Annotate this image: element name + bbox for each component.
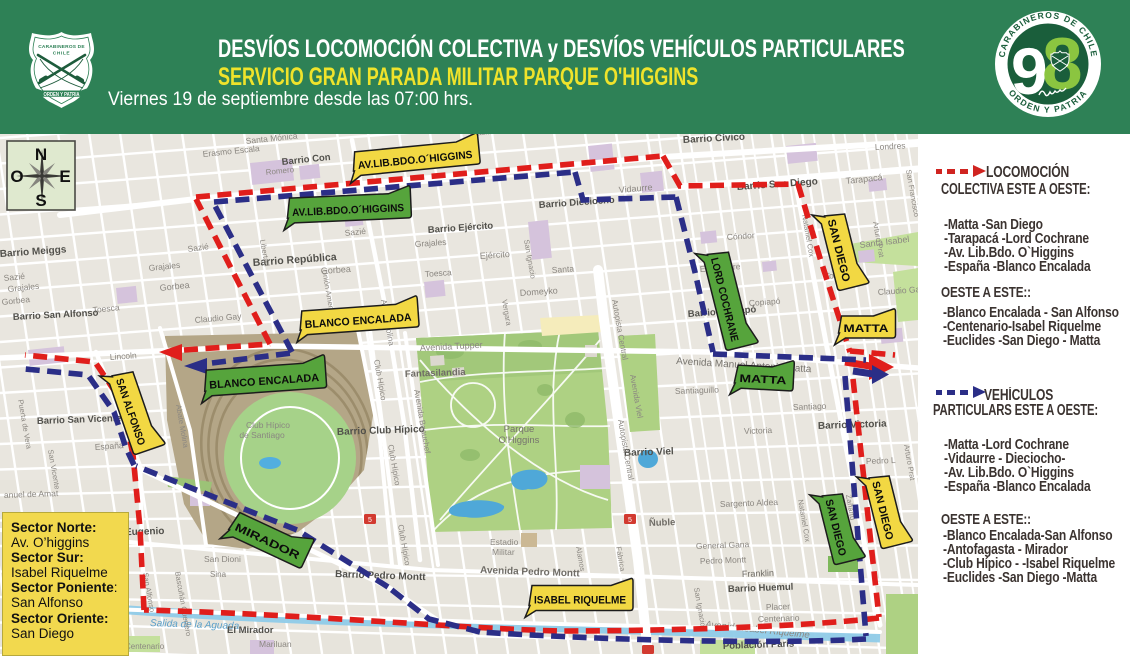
svg-text:El Mirador: El Mirador [227, 625, 274, 636]
svg-text:ORDEN Y PATRIA: ORDEN Y PATRIA [44, 92, 80, 98]
svg-text:Barrio Huemul: Barrio Huemul [728, 582, 794, 595]
svg-text:ISABEL RIQUELME: ISABEL RIQUELME [534, 595, 626, 607]
svg-text:San Dioni: San Dioni [204, 554, 241, 564]
svg-text:S: S [35, 191, 46, 210]
svg-text:5: 5 [628, 517, 632, 524]
svg-text:Mariluan: Mariluan [259, 639, 292, 649]
svg-text:O'Higgins: O'Higgins [499, 435, 540, 446]
svg-text:Fantasilandia: Fantasilandia [405, 367, 467, 380]
svg-text:Parque: Parque [504, 424, 535, 435]
svg-text:Santiago: Santiago [793, 401, 827, 412]
svg-text:Santa: Santa [551, 263, 574, 275]
svg-text:Franklin: Franklin [742, 568, 774, 579]
svg-text:de Santiago: de Santiago [239, 430, 285, 440]
svg-text:Lincoln: Lincoln [109, 350, 137, 362]
svg-text:Ñuble: Ñuble [649, 517, 676, 529]
svg-text:Toesca: Toesca [424, 267, 452, 279]
svg-text:Militar: Militar [492, 547, 515, 557]
svg-text:CARABINEROS DE: CARABINEROS DE [38, 44, 85, 50]
svg-text:MATTA: MATTA [739, 373, 787, 387]
svg-text:Pedro L: Pedro L [866, 455, 896, 466]
svg-text:E: E [59, 167, 70, 186]
svg-text:MATTA: MATTA [844, 323, 889, 335]
svg-text:Santiaguillo: Santiaguillo [675, 384, 720, 396]
svg-text:N: N [35, 145, 47, 164]
svg-text:Estadio: Estadio [490, 537, 519, 547]
svg-text:Pedro Montt: Pedro Montt [700, 554, 747, 566]
svg-text:Victoria: Victoria [744, 425, 773, 436]
svg-text:España: España [94, 440, 124, 452]
svg-text:Ejército: Ejército [479, 249, 510, 261]
svg-text:Sina: Sina [210, 570, 227, 579]
svg-text:anuel de Amat: anuel de Amat [4, 488, 59, 500]
svg-text:Centenario: Centenario [758, 613, 800, 624]
svg-text:Placer: Placer [766, 601, 791, 612]
svg-text:Londres: Londres [875, 140, 906, 152]
svg-text:Cóndor: Cóndor [726, 230, 755, 242]
svg-text:CHILE: CHILE [53, 51, 71, 57]
svg-text:Club Hípico: Club Hípico [246, 420, 290, 430]
svg-text:O: O [10, 167, 23, 186]
svg-text:Sargento Aldea: Sargento Aldea [720, 497, 779, 509]
svg-text:Centenario: Centenario [125, 642, 165, 651]
svg-text:General Gana: General Gana [696, 539, 750, 551]
svg-text:5: 5 [368, 517, 372, 524]
